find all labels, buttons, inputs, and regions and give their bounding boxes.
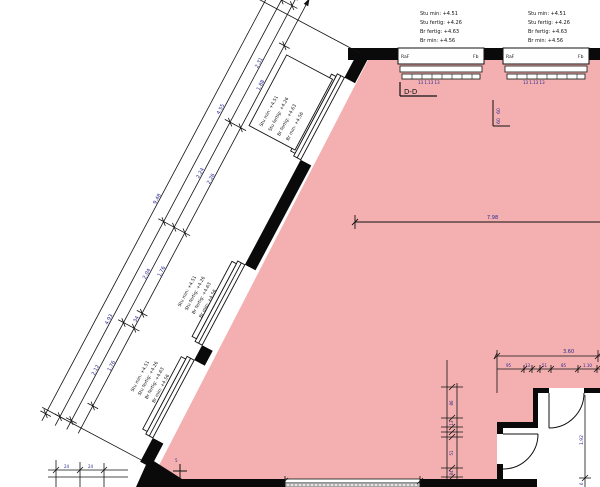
bottom-wall-right	[420, 479, 537, 487]
hdr1-line2: Stu fertig: +4.26	[420, 20, 462, 26]
top-window-1-right-label: Fb	[473, 54, 479, 60]
vleft-3: 84	[449, 470, 454, 476]
room-top-wall-right	[584, 388, 600, 393]
hseg-4: 1.10	[583, 363, 592, 368]
hseg-0: 95	[506, 363, 512, 368]
hdr2-line4: Br min: +4.56	[528, 38, 563, 44]
column-marker-b: 60	[496, 118, 502, 124]
hdr1-line4: Br min: +4.56	[420, 38, 455, 44]
top-window-1-sill	[400, 66, 482, 72]
room-stub-wall	[533, 393, 538, 422]
hdr1-line1: Stu min: +4.51	[420, 11, 458, 17]
hseg-1: 13	[525, 363, 531, 368]
top-window-1-left-label: RaF	[401, 54, 410, 60]
room-left-jamb-top	[497, 428, 503, 434]
top-window-2-underdims: 13 1.13 13	[523, 80, 545, 85]
top-window-2-sill	[505, 66, 587, 72]
hseg-2: 51	[542, 363, 548, 368]
floor-plan-page: 1.88 2.26 1.76 34 1.76 2.31 2.24 2.04 2.…	[0, 0, 600, 487]
room-top-wall-left	[533, 388, 549, 393]
v-right-label: 1.92	[579, 435, 585, 445]
top-window-2-frame	[503, 48, 589, 64]
top-window-1-band	[402, 74, 480, 79]
top-window-1-frame	[398, 48, 484, 64]
top-window-2-left-label: RaF	[506, 54, 515, 60]
hseg-3: 85	[561, 363, 567, 368]
vleft-0: 86	[449, 400, 454, 406]
vleft-2: 51	[449, 450, 454, 456]
bottom-window-upper	[285, 479, 420, 483]
room-mid-wall	[497, 422, 538, 428]
hdr2-line1: Stu min: +4.51	[528, 11, 566, 17]
right-h-total: 3.60	[563, 349, 574, 355]
bottom-left-dim-b: 24	[88, 464, 94, 469]
hdr2-line2: Stu fertig: +4.26	[528, 20, 570, 26]
hdr1-line3: Br fertig: +4.63	[420, 29, 459, 35]
vleft-1: 13	[449, 420, 454, 426]
section-marker-label: D-D	[404, 88, 417, 96]
column-marker-a: 60	[496, 108, 502, 114]
floor-plan-canvas: 1.88 2.26 1.76 34 1.76 2.31 2.24 2.04 2.…	[0, 0, 600, 487]
bottom-left-dim-a: 24	[64, 464, 70, 469]
main-dim-label: 7.98	[487, 215, 498, 221]
top-window-1-underdims: 13 1.13 13	[418, 80, 440, 85]
top-window-2-band	[507, 74, 585, 79]
hdr2-line3: Br fertig: +4.63	[528, 29, 567, 35]
top-window-2-right-label: Fb	[578, 54, 584, 60]
room-left-jamb-bottom	[497, 464, 503, 482]
